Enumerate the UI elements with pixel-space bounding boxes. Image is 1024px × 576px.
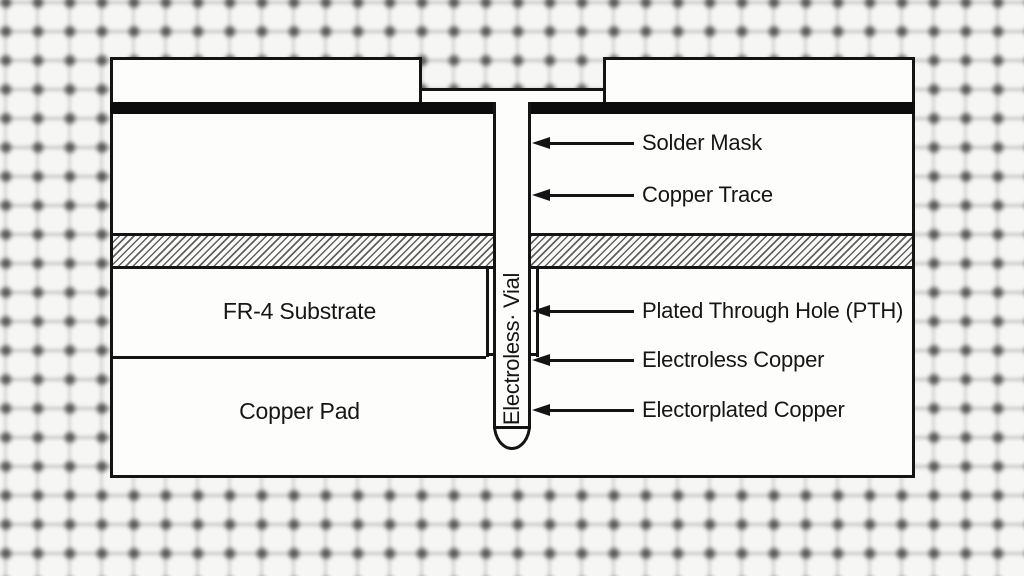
callout-line [550,310,634,313]
callout-label: Copper Trace [642,182,773,208]
callout-line [550,194,634,197]
callout-label: Solder Mask [642,130,762,156]
arrow-left-icon [532,354,550,366]
callout-solder-mask: Solder Mask [532,130,762,156]
arrow-left-icon [532,189,550,201]
copper-trace-strip [422,88,603,102]
callout-line [550,142,634,145]
callout-plated-through-hole: Plated Through Hole (PTH) [532,298,903,324]
arrow-left-icon [532,137,550,149]
callout-line [550,409,634,412]
callout-label: Plated Through Hole (PTH) [642,298,903,324]
callout-label: Electorplated Copper [642,397,845,423]
via-barrel-label: Electroless· Vial [499,263,525,435]
callout-electroless-copper: Electroless Copper [532,347,824,373]
solder-mask-block-left [110,57,422,102]
callout-copper-trace: Copper Trace [532,182,773,208]
callout-line [550,359,634,362]
callout-electroplated-copper: Electorplated Copper [532,397,845,423]
label-fr4-substrate: FR-4 Substrate [113,298,486,325]
solder-mask-block-right [603,57,915,102]
callout-label: Electroless Copper [642,347,824,373]
arrow-left-icon [532,305,550,317]
substrate-pad-divider-line [113,356,486,359]
electroless-copper-line-left [486,268,489,357]
label-copper-pad: Copper Pad [113,398,486,425]
arrow-left-icon [532,404,550,416]
pcb-via-cross-section-figure: Electroless· Vial Solder Mask Copper Tra… [0,0,1024,576]
